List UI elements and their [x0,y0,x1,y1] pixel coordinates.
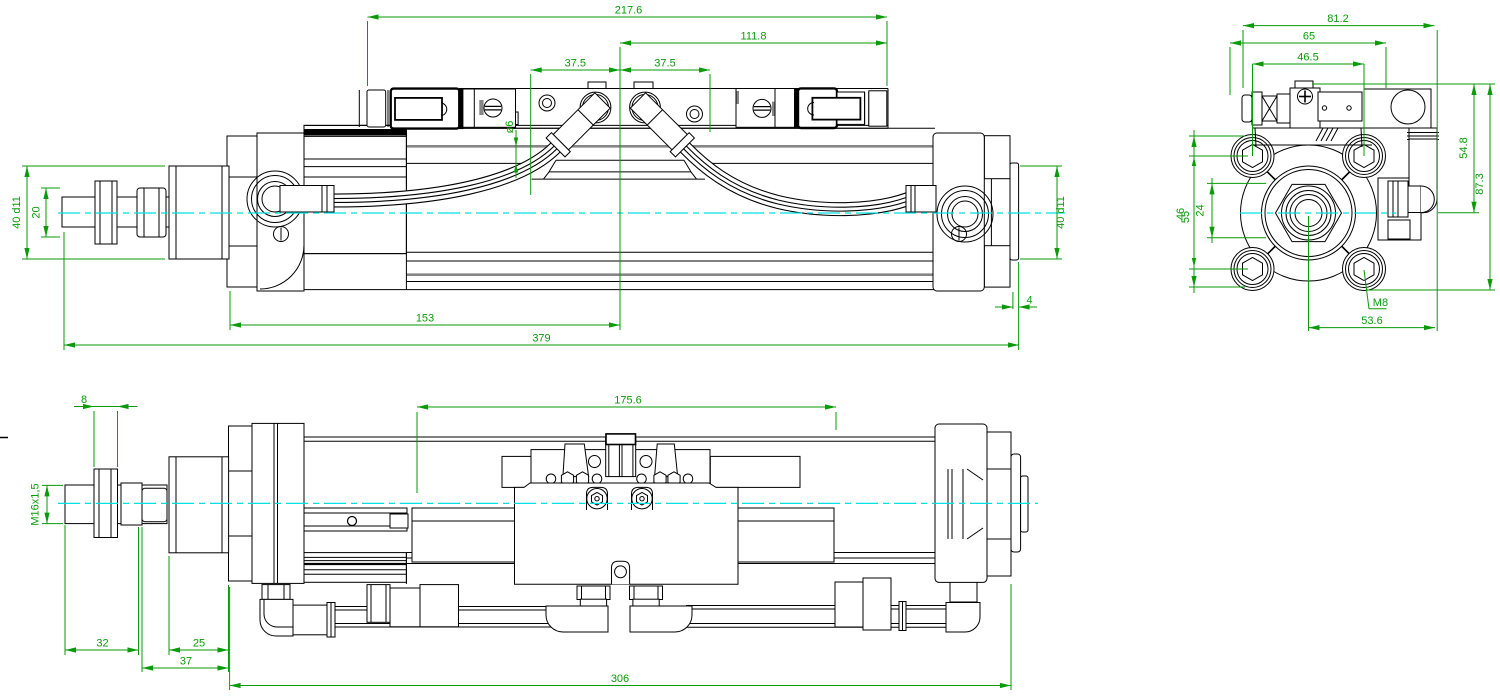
svg-text:306: 306 [611,673,629,685]
svg-text:175.6: 175.6 [614,395,642,407]
svg-text:65: 65 [1303,31,1315,43]
svg-text:M16x1,5: M16x1,5 [30,483,42,525]
svg-text:37.5: 37.5 [654,58,675,70]
svg-text:55: 55 [1180,211,1192,223]
svg-text:53.6: 53.6 [1361,315,1382,327]
svg-text:111.8: 111.8 [741,31,767,43]
svg-text:25: 25 [193,638,205,650]
svg-text:37: 37 [180,656,192,668]
svg-text:54.8: 54.8 [1458,137,1470,158]
svg-text:20: 20 [31,206,43,218]
svg-text:153: 153 [416,313,434,325]
svg-text:40 d11: 40 d11 [11,196,23,229]
svg-text:379: 379 [532,333,550,345]
svg-text:87.3: 87.3 [1474,173,1486,194]
svg-text:4: 4 [1026,295,1032,307]
svg-text:217.6: 217.6 [615,5,643,17]
svg-text:M8: M8 [1373,297,1388,309]
svg-text:37.5: 37.5 [565,58,586,70]
svg-text:40 d11: 40 d11 [1055,196,1067,229]
svg-text:8: 8 [81,394,87,406]
svg-text:24: 24 [1195,204,1207,216]
svg-text:81.2: 81.2 [1327,13,1348,25]
svg-text:46.5: 46.5 [1297,52,1318,64]
svg-text:ø6: ø6 [504,121,516,134]
svg-text:32: 32 [96,638,108,650]
